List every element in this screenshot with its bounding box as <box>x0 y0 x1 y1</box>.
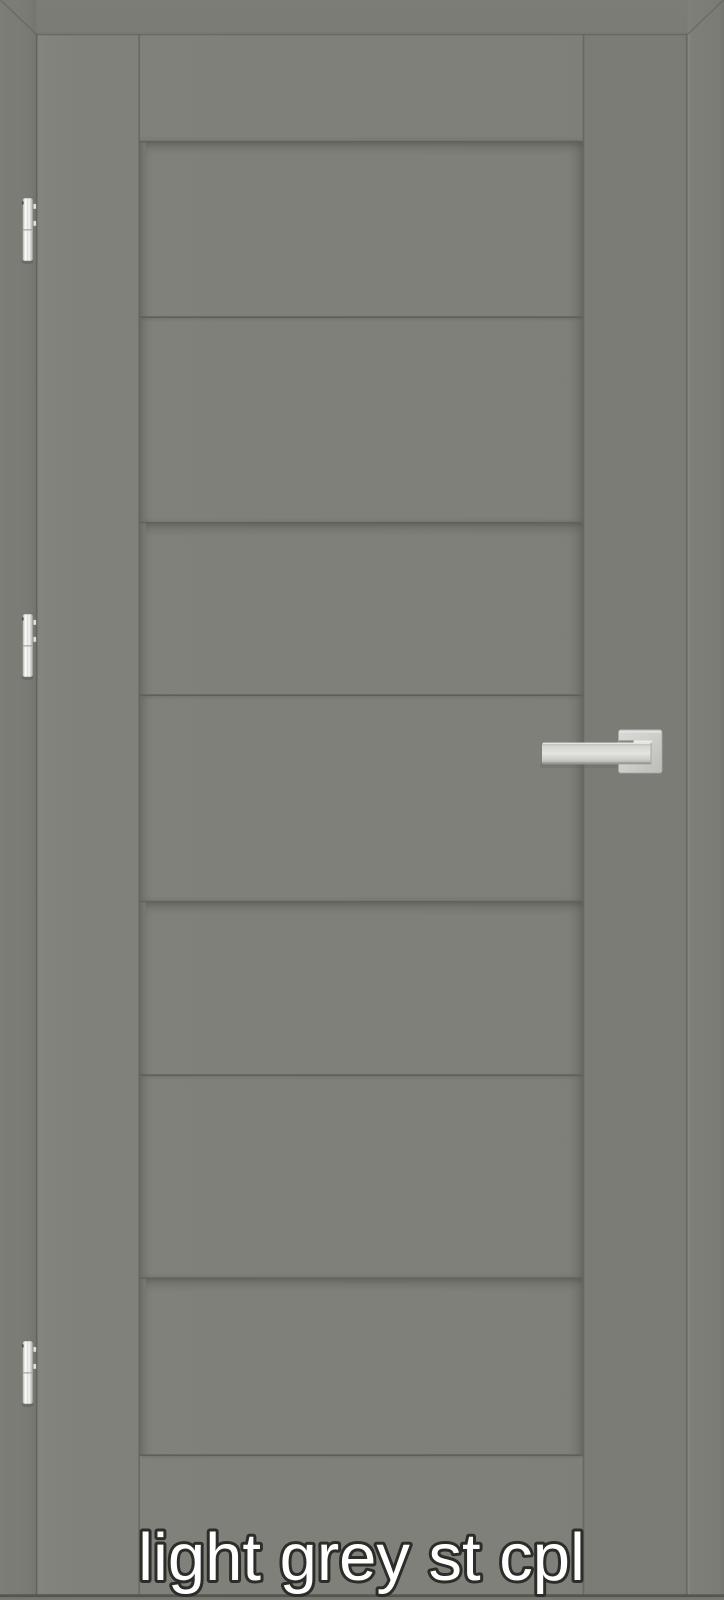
svg-text:light grey st cpl: light grey st cpl <box>138 1520 585 1595</box>
